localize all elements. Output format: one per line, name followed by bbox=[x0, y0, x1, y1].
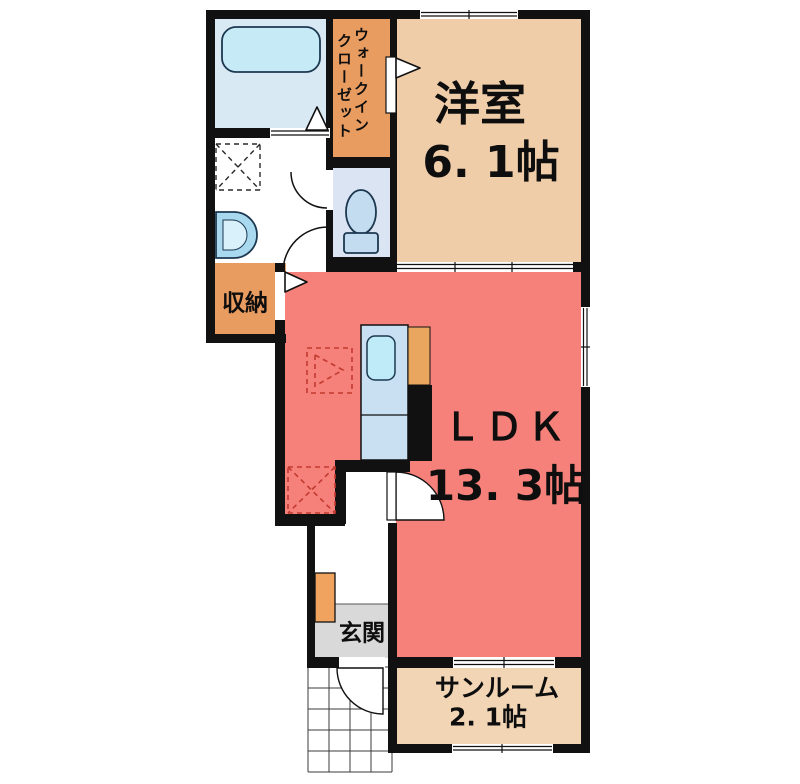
western-room-size: 6. 1帖 bbox=[422, 141, 559, 185]
shoe-cabinet bbox=[315, 573, 335, 622]
kitchen-counter bbox=[361, 325, 408, 460]
wall-western-left bbox=[390, 10, 397, 272]
entrance-label: 玄関 bbox=[339, 623, 385, 646]
wall-wic-bottom bbox=[326, 157, 397, 168]
ldk-label: ＬＤＫ bbox=[443, 408, 569, 446]
doorway-storage bbox=[275, 272, 285, 320]
kitchen-sink bbox=[367, 336, 395, 380]
outside-area bbox=[253, 524, 307, 676]
wall-hallway-left bbox=[307, 524, 315, 668]
kitchen-stove bbox=[408, 327, 430, 385]
sliding-door-western-ldk bbox=[397, 262, 573, 272]
wall-leftcol-bottom bbox=[206, 334, 286, 343]
door-leaf-hall-ldk bbox=[387, 472, 396, 520]
floorplan-canvas: 洋室 6. 1帖 ＬＤＫ 13. 3帖 サンルーム 2. 1帖 玄関 収納 ウォ… bbox=[0, 0, 800, 784]
wic-label-line2: クローゼット bbox=[336, 33, 351, 141]
doorway-toilet bbox=[326, 170, 333, 210]
wall-sunroom-left bbox=[388, 657, 397, 753]
wall-hall-ldk bbox=[388, 523, 397, 658]
wall-entry-left bbox=[307, 657, 339, 668]
storage-label: 収納 bbox=[222, 293, 268, 316]
western-room-label: 洋室 bbox=[434, 81, 526, 127]
doorway-entry bbox=[339, 657, 385, 668]
wall-toilet-bottom bbox=[326, 257, 397, 272]
wall-divider-stub bbox=[573, 262, 581, 272]
sunroom-label: サンルーム bbox=[435, 676, 559, 701]
door-leaf-wic bbox=[386, 57, 396, 113]
wic-label-line1: ウォークイン bbox=[353, 27, 368, 135]
ldk-size: 13. 3帖 bbox=[426, 465, 586, 507]
wall-kitchen-bottom bbox=[337, 460, 410, 472]
sunroom-size: 2. 1帖 bbox=[449, 705, 527, 730]
vanity-sink bbox=[216, 212, 257, 258]
bathtub bbox=[222, 27, 320, 72]
wall-kitchen-bar bbox=[408, 385, 432, 461]
wall-top bbox=[206, 10, 590, 19]
wall-left bbox=[206, 10, 215, 343]
floorplan-drawing bbox=[0, 0, 800, 784]
toilet-fixture bbox=[344, 190, 378, 253]
